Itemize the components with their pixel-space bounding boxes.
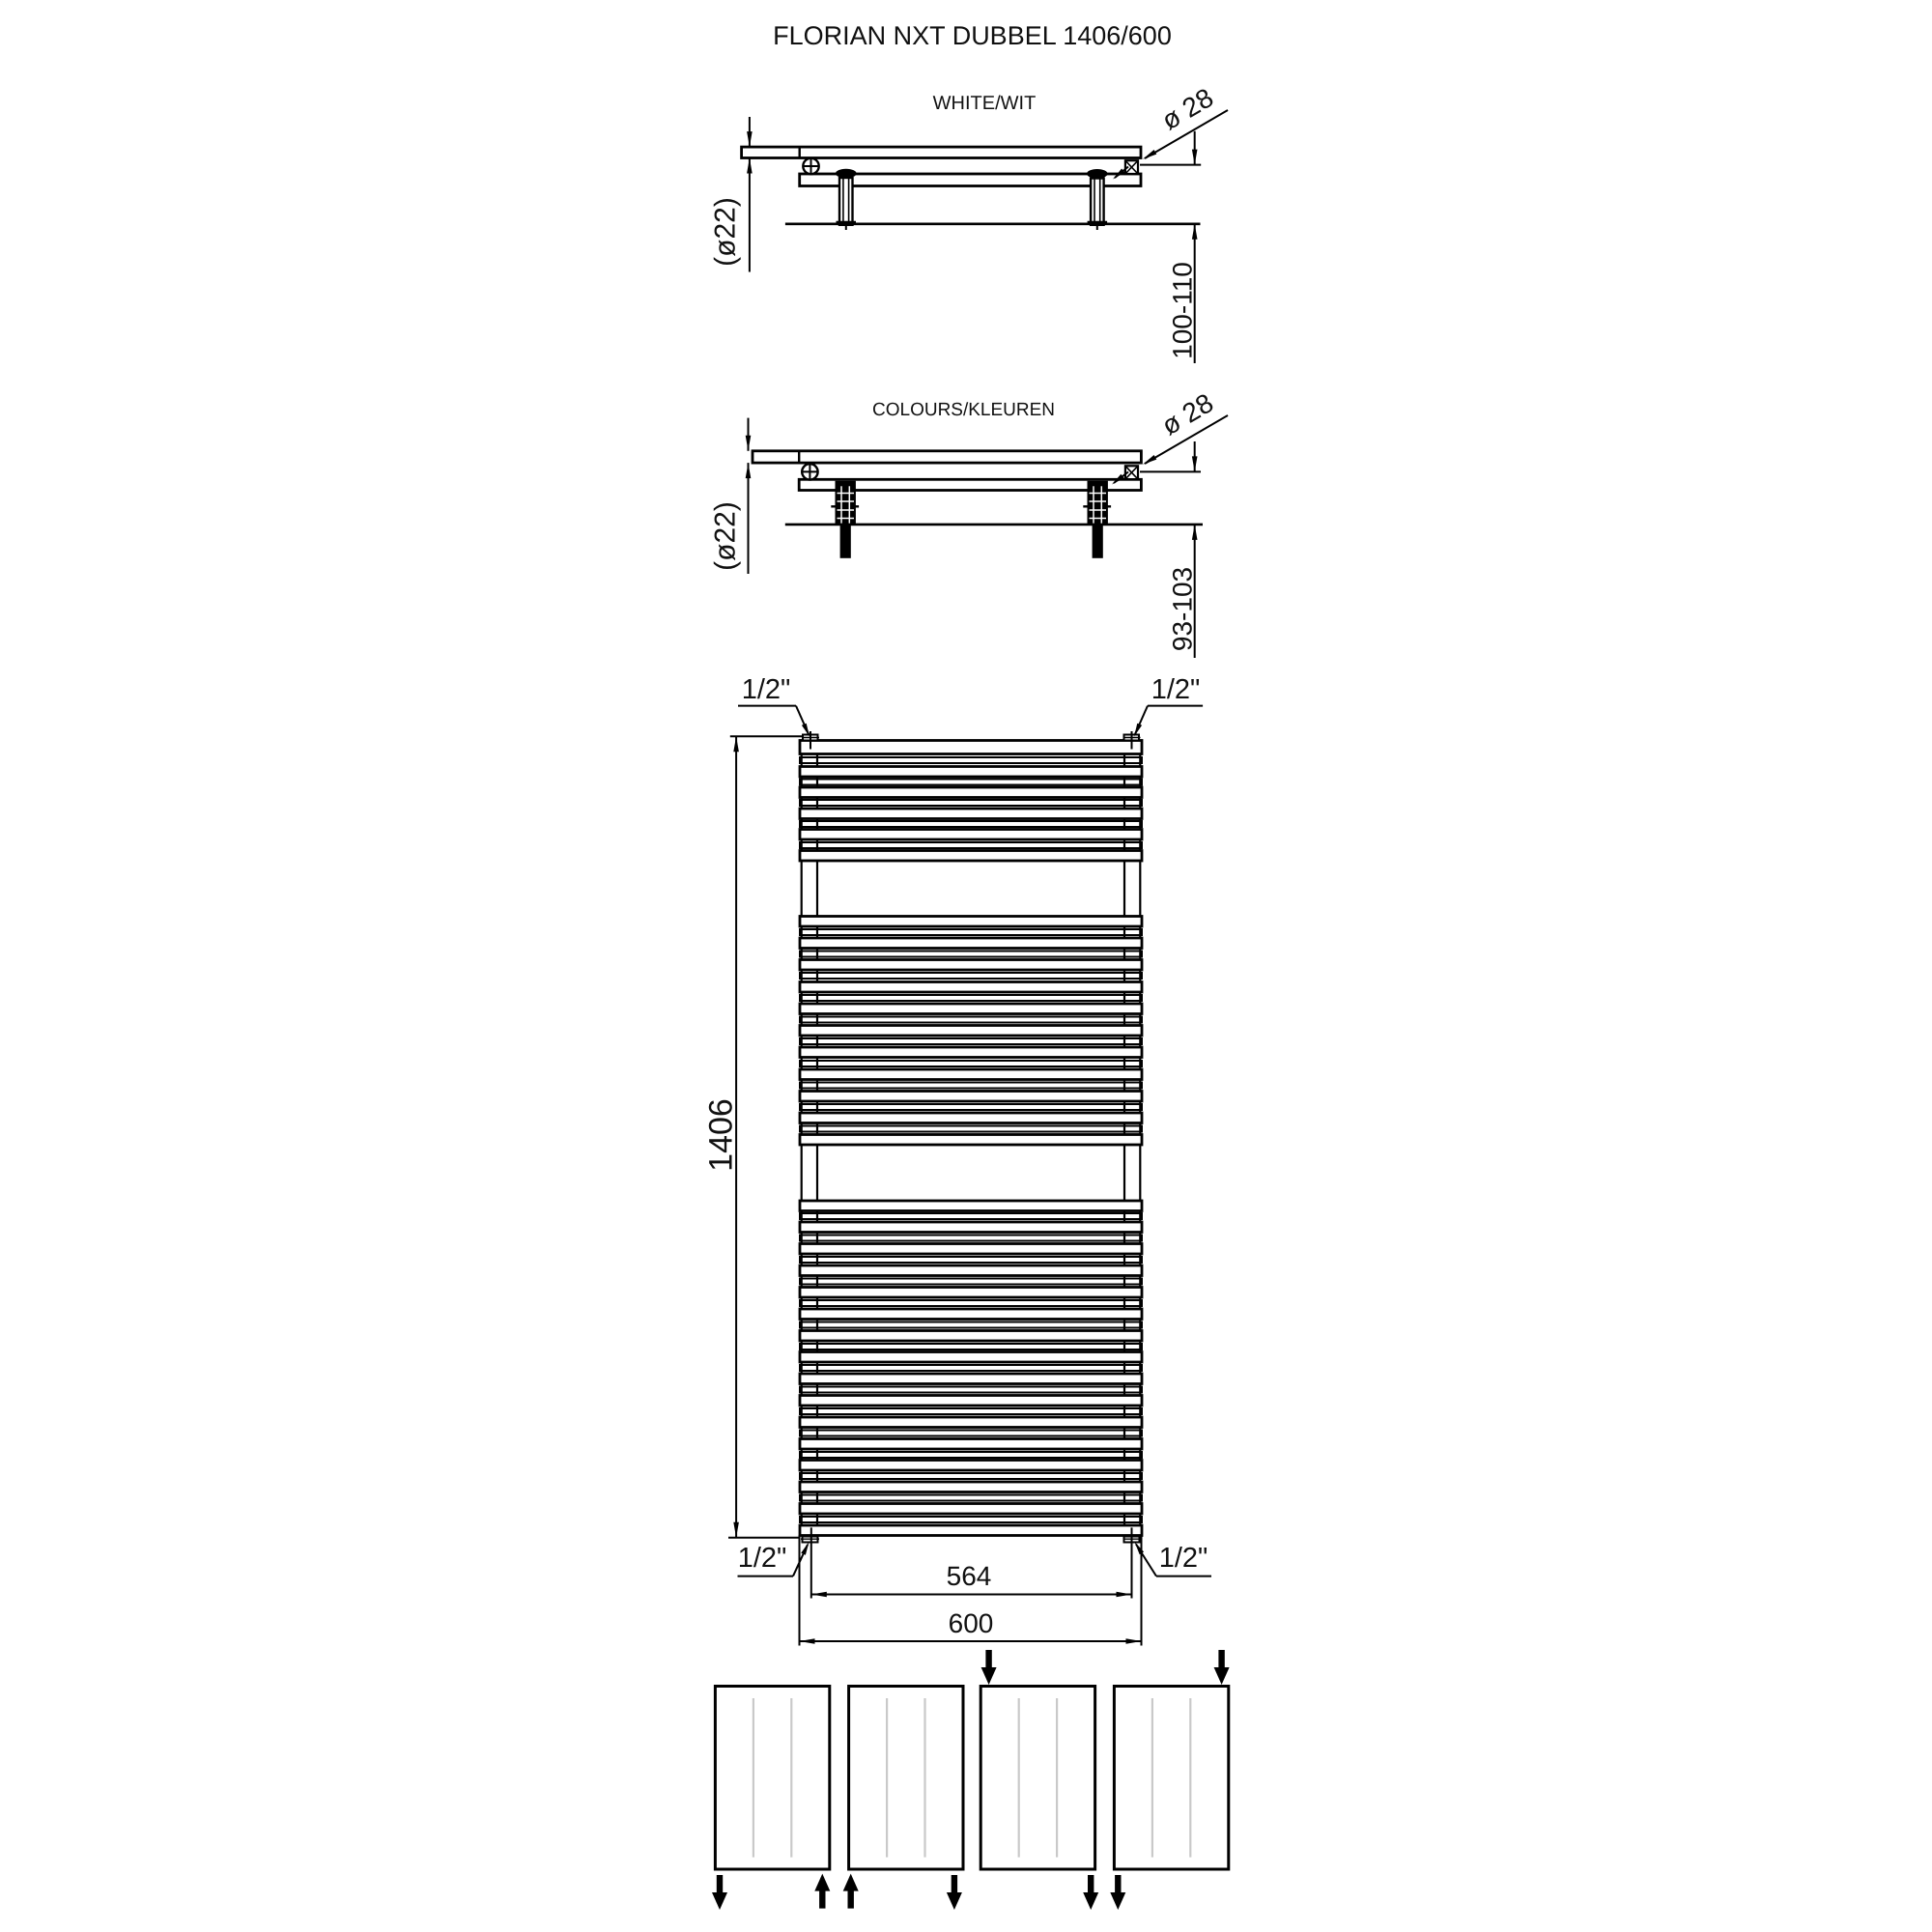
svg-text:564: 564 [947,1561,992,1591]
svg-text:FLORIAN NXT DUBBEL 1406/600: FLORIAN NXT DUBBEL 1406/600 [773,21,1172,50]
svg-text:1/2": 1/2" [1159,1543,1208,1574]
svg-text:(ø22): (ø22) [710,501,742,571]
svg-text:(ø22): (ø22) [710,197,742,267]
svg-text:600: 600 [949,1608,994,1638]
svg-text:COLOURS/KLEUREN: COLOURS/KLEUREN [872,400,1055,420]
svg-text:WHITE/WIT: WHITE/WIT [933,93,1037,114]
svg-text:1/2": 1/2" [1151,674,1201,705]
svg-text:93-103: 93-103 [1168,567,1198,651]
svg-text:1/2": 1/2" [738,1543,787,1574]
svg-text:100-110: 100-110 [1168,262,1198,359]
svg-text:1/2": 1/2" [742,674,791,705]
svg-text:1406: 1406 [703,1098,740,1172]
